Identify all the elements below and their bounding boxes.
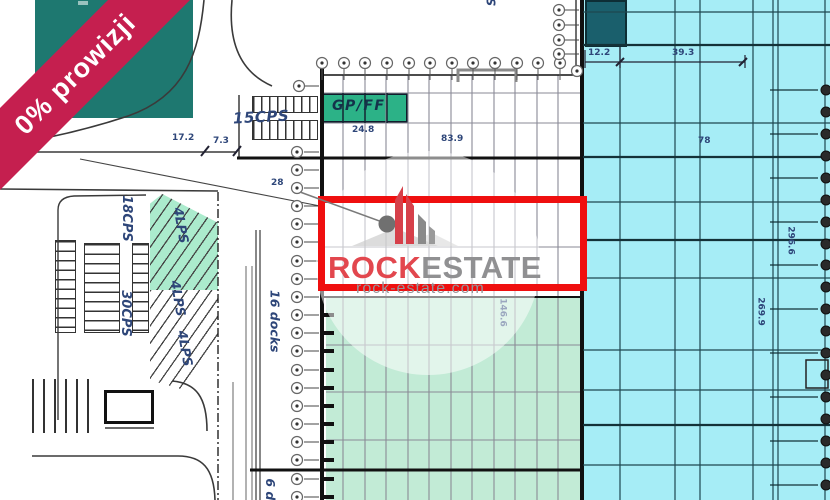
crane-cable (300, 192, 385, 223)
logo-tower-red-1 (395, 186, 403, 244)
logo-tower-red-2 (406, 194, 414, 244)
site-plan-canvas: 15CPS GP/FF 18CPS 30CPS 4LPS 4LPS 4LPS 1… (0, 0, 830, 500)
logo-tower-gray-2 (429, 226, 435, 244)
wrecking-ball-icon (379, 216, 396, 233)
logo-tower-gray-1 (418, 214, 426, 244)
watermark-website: rock-estate.com (356, 280, 485, 298)
